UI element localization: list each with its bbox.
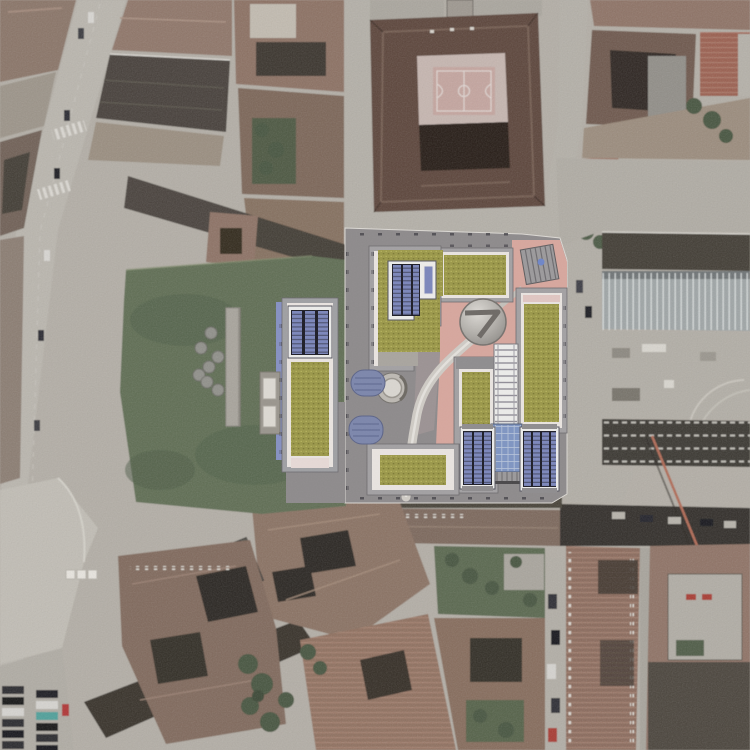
aerial-view-canvas: [0, 0, 750, 750]
print-grain-overlay: [0, 0, 750, 750]
aerial-masterplan-screenshot: [0, 0, 750, 750]
